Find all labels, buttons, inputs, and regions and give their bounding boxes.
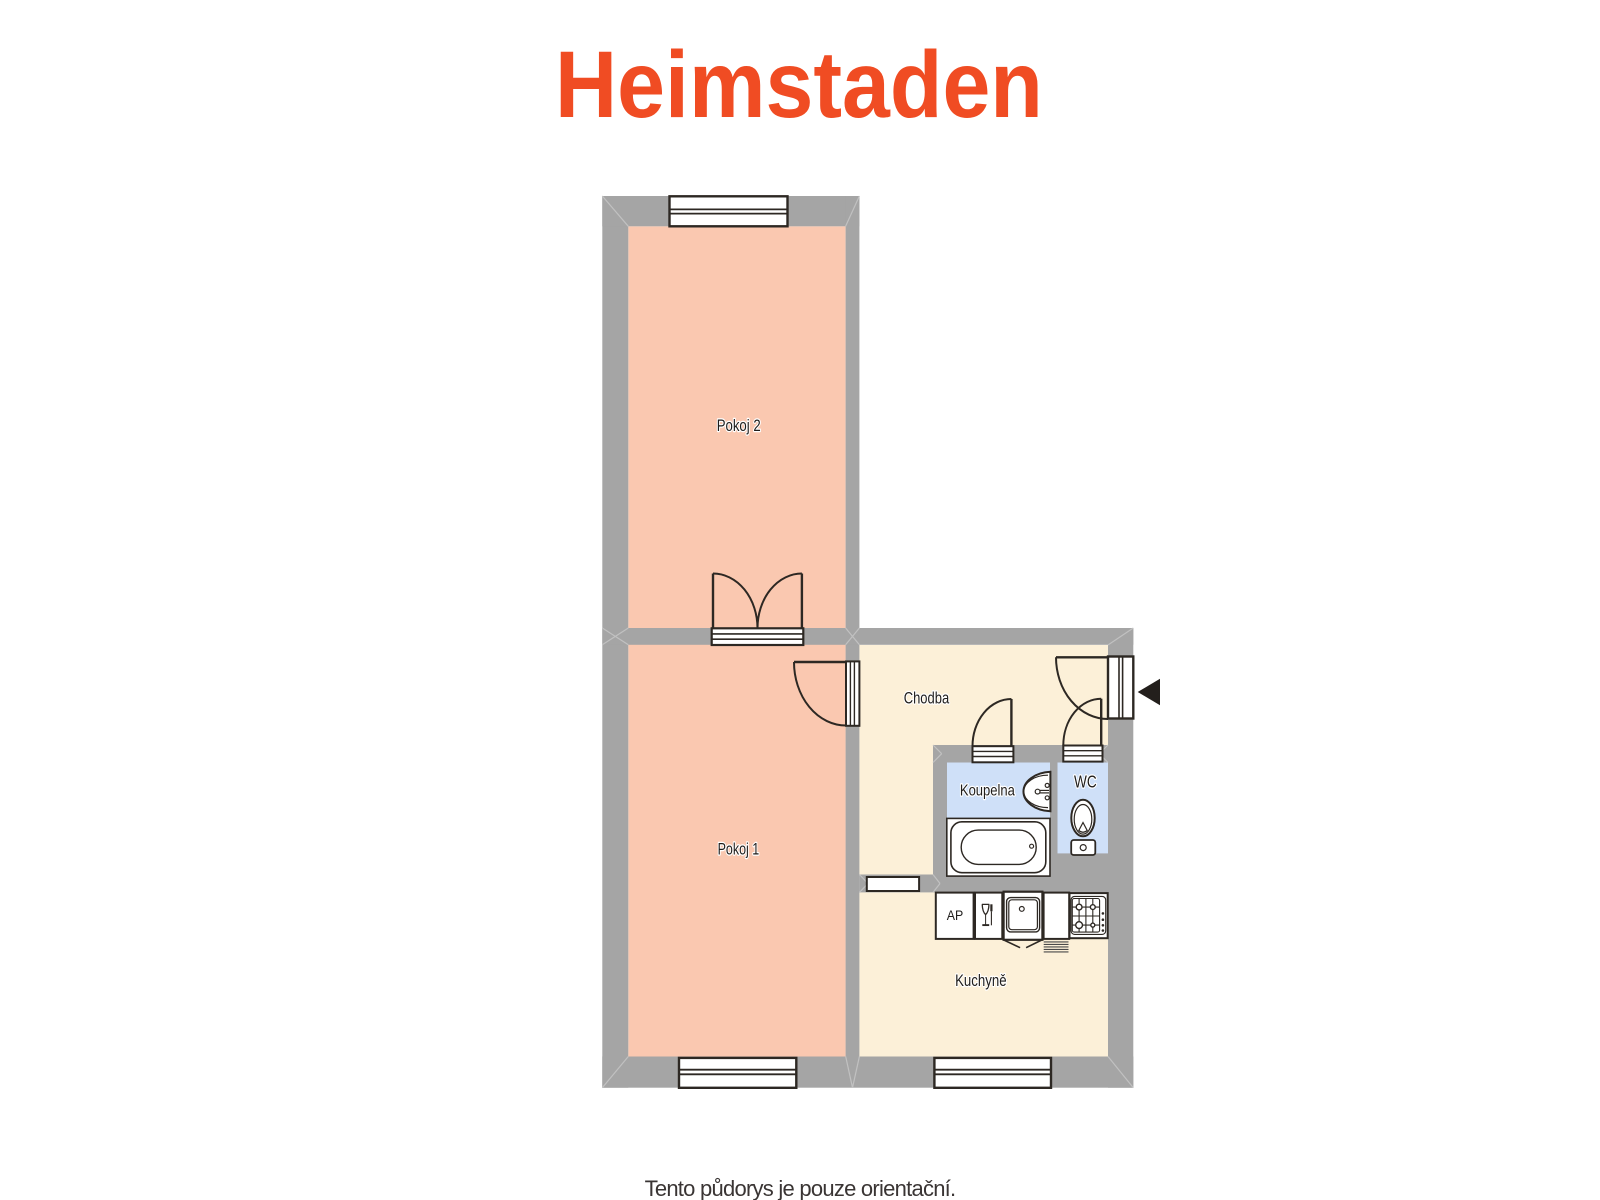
svg-text:Koupelna: Koupelna — [960, 783, 1015, 800]
svg-text:Pokoj 1: Pokoj 1 — [718, 840, 760, 859]
svg-text:Kuchyně: Kuchyně — [955, 971, 1007, 990]
svg-text:Pokoj 2: Pokoj 2 — [717, 416, 761, 435]
svg-text:Chodba: Chodba — [904, 689, 950, 708]
svg-text:WC: WC — [1074, 771, 1097, 791]
svg-text:AP: AP — [947, 907, 964, 923]
